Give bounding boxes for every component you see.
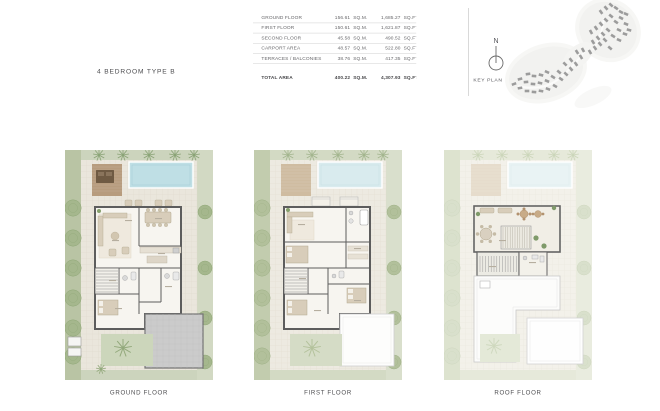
row-sqft: 490.52 [368, 33, 400, 43]
table-row: FIRST FLOOR 150.61 SQ.M. 1,621.87 SQ.FT. [253, 23, 416, 33]
row-label: GROUND FLOOR [253, 13, 324, 23]
site-map [498, 0, 660, 108]
row-label: SECOND FLOOR [253, 33, 324, 43]
area-table: GROUND FLOOR 156.61 SQ.M. 1,685.27 SQ.FT… [253, 13, 416, 64]
table-row: TERRACES / BALCONIES 38.76 SQ.M. 417.35 … [253, 54, 416, 64]
roof-floor-label: ROOF FLOOR [467, 389, 569, 396]
row-sqft-unit: SQ.FT. [401, 23, 417, 33]
row-sqm-unit: SQ.M. [350, 54, 368, 64]
total-label: TOTAL AREA [253, 73, 324, 83]
total-sqm-unit: SQ.M. [350, 73, 368, 83]
row-sqm: 38.76 [324, 54, 350, 64]
ground-floor-label: GROUND FLOOR [88, 389, 190, 396]
row-sqft-unit: SQ.FT. [401, 54, 417, 64]
row-sqm: 156.61 [324, 13, 350, 23]
vertical-divider [468, 8, 469, 96]
table-total-row: TOTAL AREA 400.22 SQ.M. 4,307.93 SQ.FT. [253, 73, 416, 83]
roof-floor-plan [444, 150, 592, 380]
brochure-sheet: 4 BEDROOM TYPE B GROUND FLOOR 156.61 SQ.… [0, 0, 660, 411]
row-sqm: 45.58 [324, 33, 350, 43]
page-title: 4 BEDROOM TYPE B [97, 68, 176, 75]
total-sqm: 400.22 [324, 73, 350, 83]
row-sqft: 1,621.87 [368, 23, 400, 33]
row-sqft: 417.35 [368, 54, 400, 64]
row-label: FIRST FLOOR [253, 23, 324, 33]
row-label: TERRACES / BALCONIES [253, 54, 324, 64]
row-sqft: 522.80 [368, 44, 400, 54]
row-sqft-unit: SQ.FT. [401, 33, 417, 43]
table-row: SECOND FLOOR 45.58 SQ.M. 490.52 SQ.FT. [253, 33, 416, 43]
first-floor-plan [254, 150, 402, 380]
row-sqft: 1,685.27 [368, 13, 400, 23]
row-label: CARPORT AREA [253, 44, 324, 54]
table-row: CARPORT AREA 48.57 SQ.M. 522.80 SQ.FT. [253, 44, 416, 54]
total-sqft: 4,307.93 [368, 73, 400, 83]
total-sqft-unit: SQ.FT. [401, 73, 417, 83]
row-sqm: 150.61 [324, 23, 350, 33]
row-sqm: 48.57 [324, 44, 350, 54]
row-sqm-unit: SQ.M. [350, 23, 368, 33]
row-sqm-unit: SQ.M. [350, 44, 368, 54]
row-sqft-unit: SQ.FT. [401, 44, 417, 54]
row-sqm-unit: SQ.M. [350, 13, 368, 23]
first-floor-label: FIRST FLOOR [277, 389, 379, 396]
row-sqft-unit: SQ.FT. [401, 13, 417, 23]
table-row: GROUND FLOOR 156.61 SQ.M. 1,685.27 SQ.FT… [253, 13, 416, 23]
ground-floor-plan [65, 150, 213, 380]
row-sqm-unit: SQ.M. [350, 33, 368, 43]
